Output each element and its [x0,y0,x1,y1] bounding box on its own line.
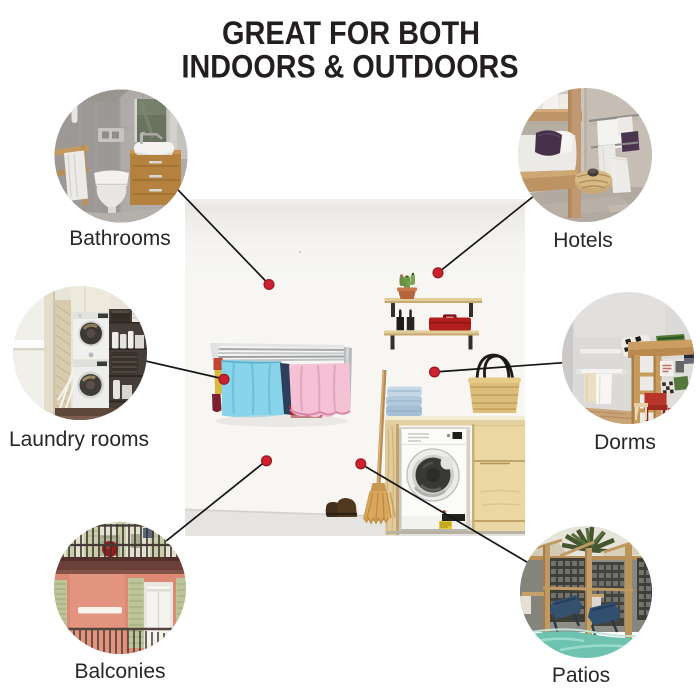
svg-text:GREAT FOR BOTH: GREAT FOR BOTH [222,15,480,51]
svg-text:Laundry rooms: Laundry rooms [9,428,149,451]
svg-text:Patios: Patios [552,664,610,687]
svg-text:INDOORS & OUTDOORS: INDOORS & OUTDOORS [182,49,519,85]
svg-text:Dorms: Dorms [594,431,656,454]
svg-text:Hotels: Hotels [553,229,613,252]
svg-text:Balconies: Balconies [74,660,165,683]
svg-text:Bathrooms: Bathrooms [69,227,171,250]
